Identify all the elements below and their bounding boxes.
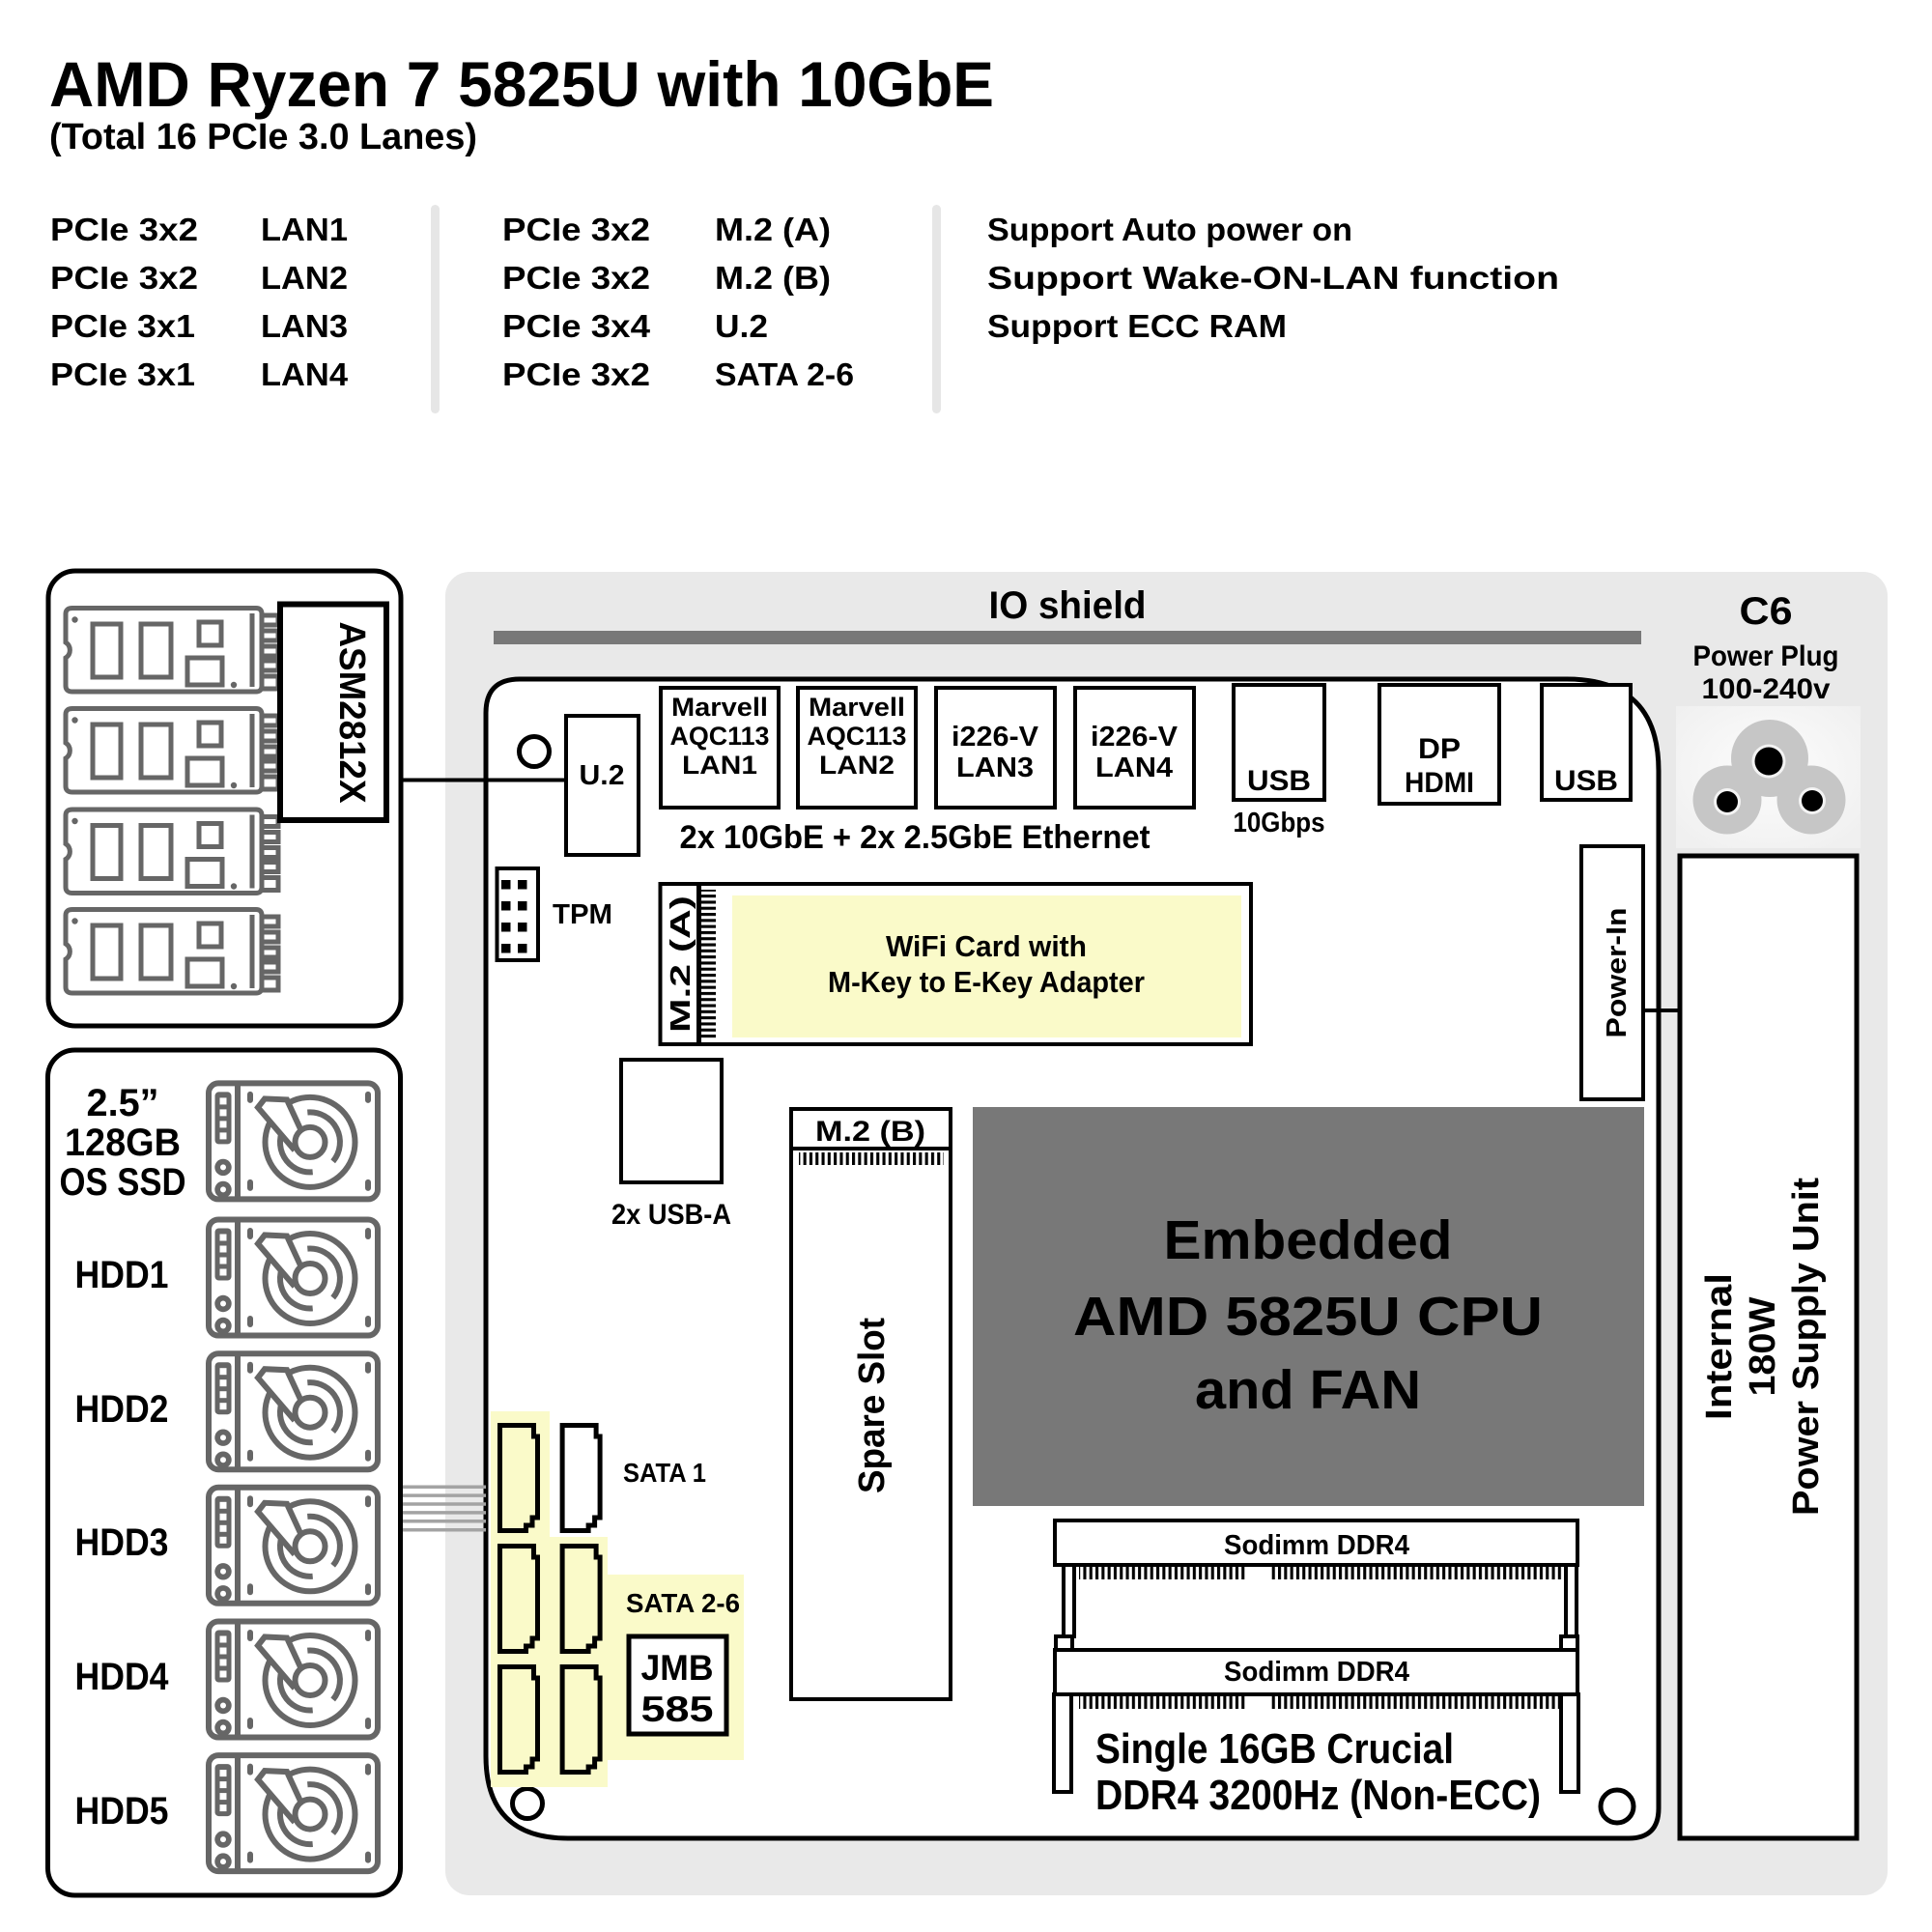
svg-text:U.2: U.2 [715,308,768,344]
svg-text:100-240v: 100-240v [1702,673,1831,705]
svg-text:DDR4 3200Hz (Non-ECC): DDR4 3200Hz (Non-ECC) [1095,1772,1541,1819]
svg-text:M.2 (A): M.2 (A) [666,895,696,1033]
svg-text:HDMI: HDMI [1405,767,1474,799]
svg-text:PCIe 3x1: PCIe 3x1 [50,356,195,392]
svg-text:Support ECC RAM: Support ECC RAM [987,308,1287,344]
svg-text:M.2 (A): M.2 (A) [715,212,831,247]
svg-text:i226-V: i226-V [952,722,1039,753]
svg-text:PCIe 3x1: PCIe 3x1 [50,308,195,344]
svg-text:U.2: U.2 [580,760,625,791]
svg-text:(Total 16 PCIe 3.0 Lanes): (Total 16 PCIe 3.0 Lanes) [49,117,477,157]
svg-text:PCIe 3x2: PCIe 3x2 [502,260,650,296]
svg-text:HDD1: HDD1 [75,1254,169,1296]
svg-text:HDD2: HDD2 [75,1388,169,1431]
svg-text:WiFi Card with: WiFi Card with [886,929,1087,963]
svg-text:HDD3: HDD3 [75,1521,169,1564]
svg-text:LAN2: LAN2 [261,260,348,296]
svg-text:LAN4: LAN4 [261,356,349,392]
svg-text:i226-V: i226-V [1091,722,1179,753]
svg-text:M.2 (B): M.2 (B) [815,1116,925,1148]
svg-text:10Gbps: 10Gbps [1234,808,1325,838]
svg-text:Sodimm DDR4: Sodimm DDR4 [1224,1530,1409,1561]
svg-text:PCIe 3x2: PCIe 3x2 [502,356,650,392]
svg-text:M.2 (B): M.2 (B) [715,260,831,296]
svg-text:Support Auto power on: Support Auto power on [987,212,1352,247]
svg-text:PCIe 3x4: PCIe 3x4 [502,308,651,344]
svg-text:AMD Ryzen 7 5825U with 10GbE: AMD Ryzen 7 5825U with 10GbE [49,48,994,120]
svg-text:PCIe 3x2: PCIe 3x2 [502,212,650,247]
svg-text:JMB: JMB [641,1648,714,1688]
svg-text:Sodimm DDR4: Sodimm DDR4 [1224,1657,1409,1688]
svg-text:585: 585 [641,1690,714,1729]
svg-text:Single 16GB Crucial: Single 16GB Crucial [1095,1725,1454,1773]
svg-text:SATA 2-6: SATA 2-6 [715,356,854,392]
svg-text:Internal: Internal [1699,1273,1740,1420]
svg-text:PCIe 3x2: PCIe 3x2 [50,212,198,247]
svg-text:LAN2: LAN2 [819,751,895,780]
svg-text:Power Supply Unit: Power Supply Unit [1786,1178,1827,1516]
svg-text:LAN1: LAN1 [261,212,348,247]
svg-text:USB: USB [1247,765,1311,797]
svg-text:ASM2812X: ASM2812X [331,622,372,805]
svg-text:Spare Slot: Spare Slot [852,1318,893,1493]
svg-text:2x USB-A: 2x USB-A [611,1199,731,1231]
svg-text:HDD5: HDD5 [75,1790,169,1833]
svg-text:128GB: 128GB [65,1122,181,1164]
svg-text:Marvell: Marvell [671,693,768,722]
svg-text:2.5”: 2.5” [87,1082,159,1124]
svg-text:LAN3: LAN3 [261,308,348,344]
svg-text:HDD4: HDD4 [75,1656,170,1698]
svg-text:TPM: TPM [553,899,612,930]
svg-text:Marvell: Marvell [809,693,905,722]
svg-text:DP: DP [1418,733,1461,765]
svg-text:M-Key to E-Key Adapter: M-Key to E-Key Adapter [828,965,1145,999]
svg-text:SATA 1: SATA 1 [623,1458,706,1488]
svg-text:Power-In: Power-In [1602,908,1633,1038]
svg-text:Power Plug: Power Plug [1693,640,1839,672]
svg-text:Support Wake-ON-LAN function: Support Wake-ON-LAN function [987,260,1559,296]
svg-text:AQC113: AQC113 [808,722,907,751]
svg-text:USB: USB [1554,765,1618,797]
svg-text:PCIe 3x2: PCIe 3x2 [50,260,198,296]
svg-text:C6: C6 [1740,590,1793,633]
svg-text:OS SSD: OS SSD [60,1161,186,1204]
svg-text:LAN3: LAN3 [956,753,1034,783]
svg-text:LAN4: LAN4 [1095,753,1173,783]
svg-text:and FAN: and FAN [1195,1359,1421,1421]
svg-text:AQC113: AQC113 [670,722,770,751]
svg-text:IO shield: IO shield [989,584,1147,627]
svg-text:2x 10GbE + 2x 2.5GbE Ethernet: 2x 10GbE + 2x 2.5GbE Ethernet [680,819,1151,856]
svg-text:180W: 180W [1743,1296,1783,1396]
svg-text:SATA 2-6: SATA 2-6 [626,1588,740,1618]
svg-text:Embedded: Embedded [1164,1209,1453,1271]
svg-text:LAN1: LAN1 [682,751,757,780]
svg-text:AMD 5825U CPU: AMD 5825U CPU [1073,1286,1543,1348]
